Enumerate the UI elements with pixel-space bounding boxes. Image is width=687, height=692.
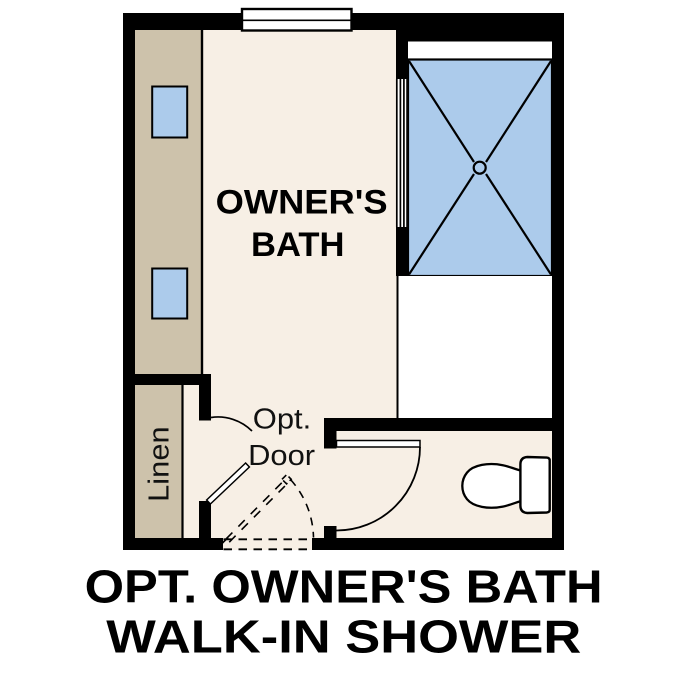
svg-text:Linen: Linen	[144, 426, 176, 502]
svg-text:WALK-IN SHOWER: WALK-IN SHOWER	[106, 611, 581, 663]
svg-text:BATH: BATH	[251, 226, 345, 264]
svg-text:Door: Door	[248, 440, 316, 472]
svg-text:OWNER'S: OWNER'S	[216, 183, 388, 221]
svg-text:Opt.: Opt.	[253, 403, 312, 435]
svg-text:OPT. OWNER'S BATH: OPT. OWNER'S BATH	[85, 561, 603, 613]
